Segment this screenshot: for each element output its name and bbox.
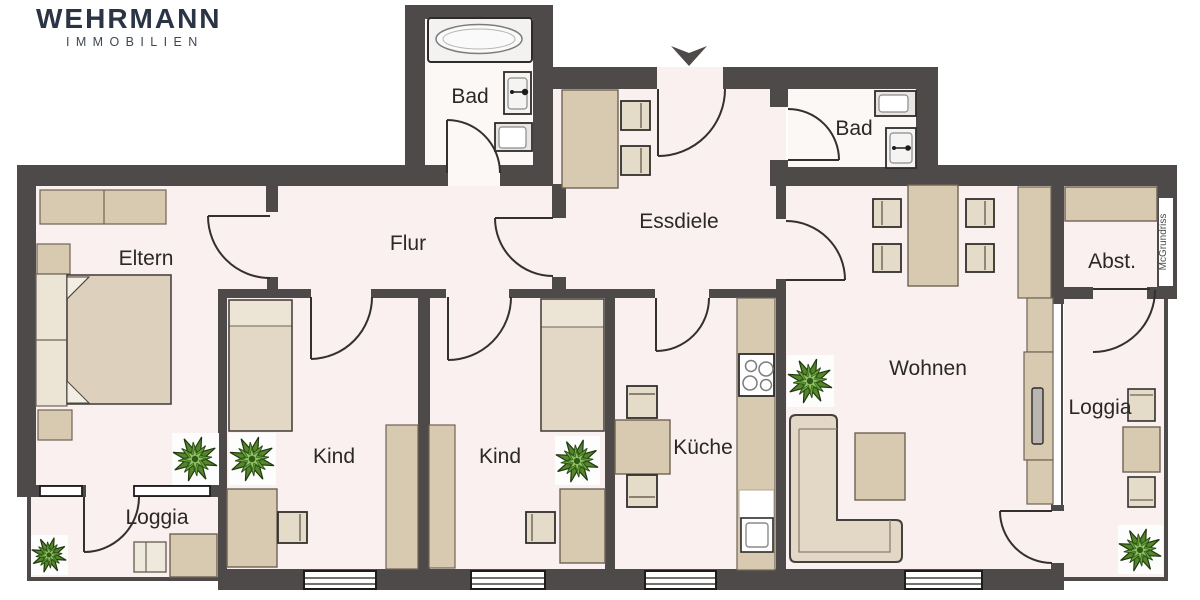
svg-text:Eltern: Eltern — [119, 247, 174, 270]
svg-text:Bad: Bad — [451, 85, 488, 108]
svg-text:IMMOBILIEN: IMMOBILIEN — [66, 35, 204, 49]
svg-text:Kind: Kind — [479, 445, 521, 468]
svg-text:Loggia: Loggia — [1068, 396, 1131, 419]
svg-text:WEHRMANN: WEHRMANN — [36, 3, 222, 34]
svg-text:Loggia: Loggia — [125, 506, 188, 529]
svg-text:McGrundriss: McGrundriss — [1158, 214, 1169, 271]
svg-text:Küche: Küche — [673, 436, 733, 459]
svg-text:Flur: Flur — [390, 232, 426, 255]
svg-text:Bad: Bad — [835, 117, 872, 140]
svg-text:Abst.: Abst. — [1088, 250, 1136, 273]
svg-text:Kind: Kind — [313, 445, 355, 468]
svg-text:Wohnen: Wohnen — [889, 357, 967, 380]
svg-text:Essdiele: Essdiele — [639, 210, 718, 233]
